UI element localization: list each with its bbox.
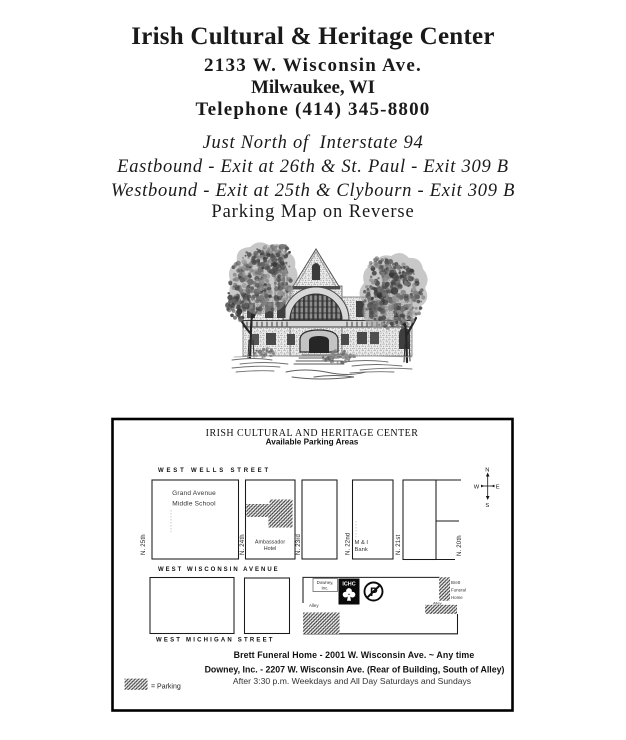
svg-text:E: E — [496, 484, 500, 490]
svg-text:Alley: Alley — [433, 601, 442, 606]
svg-text:Downey,: Downey, — [317, 580, 334, 585]
svg-text:N. 20th: N. 20th — [457, 535, 463, 556]
svg-text:Middle School: Middle School — [172, 501, 216, 508]
svg-text:N. 22nd: N. 22nd — [346, 533, 352, 555]
svg-text:W: W — [474, 484, 480, 490]
svg-text:ICHC: ICHC — [342, 582, 355, 588]
svg-text:Hotel: Hotel — [264, 546, 277, 552]
svg-text:S: S — [485, 503, 489, 509]
svg-text:Home: Home — [451, 595, 463, 600]
svg-text:= Parking: = Parking — [151, 684, 181, 691]
svg-text:Alley: Alley — [309, 603, 319, 608]
svg-text:WEST WISCONSIN AVENUE: WEST WISCONSIN AVENUE — [158, 567, 280, 573]
svg-text:M & I: M & I — [355, 540, 369, 546]
svg-text:WEST MICHIGAN STREET: WEST MICHIGAN STREET — [156, 638, 275, 644]
svg-text:N. 24th: N. 24th — [240, 534, 246, 555]
svg-text:Bank: Bank — [355, 547, 368, 553]
svg-text:N: N — [485, 468, 489, 474]
svg-text:Brett: Brett — [451, 580, 461, 585]
svg-text:Funeral: Funeral — [451, 588, 466, 593]
svg-text:Ambassador: Ambassador — [255, 540, 285, 546]
svg-text:Inc.: Inc. — [321, 586, 328, 591]
svg-text:N. 23rd: N. 23rd — [296, 534, 302, 555]
svg-text:N. 25th: N. 25th — [141, 534, 147, 555]
svg-text:After 3:30 p.m. Weekdays and A: After 3:30 p.m. Weekdays and All Day Sat… — [233, 676, 471, 686]
svg-text:Brett Funeral Home - 2001 W. W: Brett Funeral Home - 2001 W. Wisconsin A… — [234, 650, 475, 660]
svg-text:N. 21st: N. 21st — [396, 534, 402, 555]
svg-text:Available Parking Areas: Available Parking Areas — [266, 438, 359, 447]
svg-text:Grand Avenue: Grand Avenue — [172, 490, 216, 497]
svg-text:WEST WELLS STREET: WEST WELLS STREET — [158, 468, 271, 474]
svg-text:Downey, Inc. - 2207 W. Wiscons: Downey, Inc. - 2207 W. Wisconsin Ave. (R… — [205, 665, 505, 675]
